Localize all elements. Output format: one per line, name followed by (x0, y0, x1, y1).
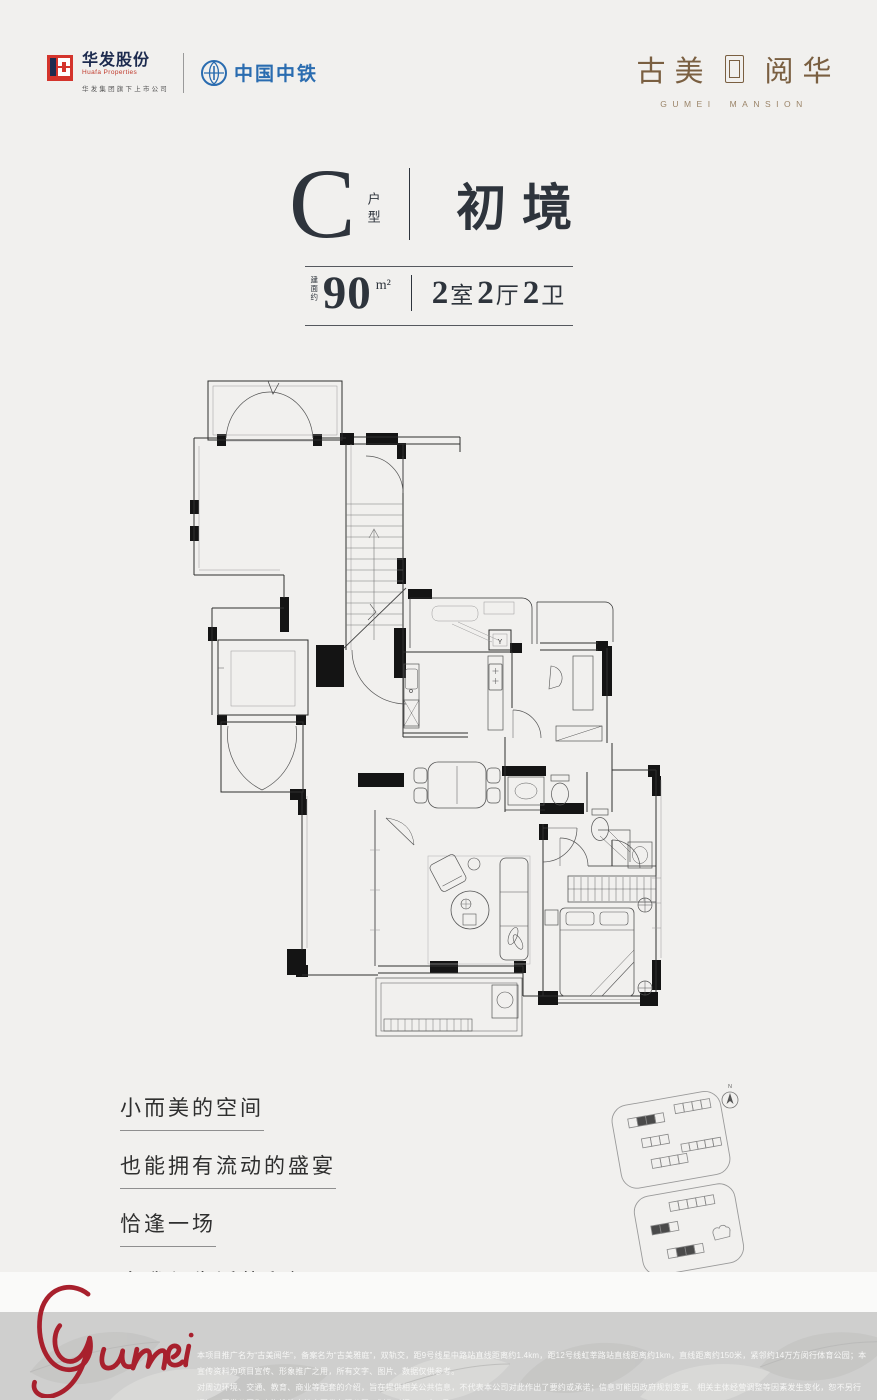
balcony (376, 978, 522, 1036)
crec-name-cn: 中国中铁 (234, 59, 318, 86)
quote-line-3: 恰逢一场 (120, 1208, 216, 1247)
washer (492, 985, 518, 1018)
header-logos: 华发股份 Huafa Properties 华发集团旗下上市公司 中国中铁 (45, 52, 318, 93)
title-divider (409, 168, 411, 240)
walls-solid (190, 433, 661, 1006)
brand-en-word1: GUMEI (660, 99, 715, 109)
unit-letter-label: 户型 (364, 192, 383, 228)
master-bedroom (545, 908, 634, 996)
parcel-2 (632, 1181, 746, 1277)
brand-cn-left: 古美 (627, 48, 712, 90)
huafa-name-cn: 华发股份 (82, 52, 169, 69)
north-label: N (728, 1084, 732, 1090)
signature-script (20, 1280, 205, 1398)
walls-thin (194, 381, 656, 1003)
huafa-name-en: Huafa Properties (82, 69, 169, 77)
header-divider (183, 53, 184, 93)
area-prefix: 建面约 (309, 276, 320, 310)
bathroom-2 (592, 809, 653, 868)
livingroom-count: 2 (477, 275, 494, 312)
room-count: 2室 2厅 2卫 (432, 275, 569, 312)
disclaimer-line-2: 对周边环境、交通、教育、商业等配套的介绍，旨在提供相关公共信息，不代表本公司对此… (197, 1380, 869, 1400)
bathroom-1 (508, 775, 569, 805)
brand-en: GUMEI MANSION (623, 99, 845, 109)
stairs (344, 504, 406, 648)
brand-seal-icon (725, 55, 744, 83)
unit-name: 初境 (440, 168, 588, 240)
parcel-1 (610, 1089, 733, 1191)
entry-double-door (226, 392, 270, 438)
crec-logo: 中国中铁 (200, 59, 318, 87)
floorplan-drawing: Y (185, 372, 685, 1044)
brand-en-word2: MANSION (730, 99, 808, 109)
area-unit: m² (376, 278, 391, 294)
title-block: C 户型 初境 建面约 90 m² 2室 2厅 2卫 (0, 158, 877, 326)
drain-symbols (638, 898, 652, 995)
lobby-room (221, 722, 303, 792)
huafa-logo: 华发股份 Huafa Properties 华发集团旗下上市公司 (45, 52, 169, 93)
clubhouse-shape (712, 1224, 731, 1240)
bedroom-2 (549, 656, 602, 741)
brand-cn-right: 阅华 (756, 48, 841, 90)
bathroom-count: 2 (523, 275, 540, 312)
title-rule-bottom (305, 325, 573, 326)
kitchen (404, 656, 503, 730)
poster: 华发股份 Huafa Properties 华发集团旗下上市公司 中国中铁 古美… (0, 0, 877, 1400)
unit-letter: C (289, 161, 356, 247)
area-value: 90 (323, 266, 372, 320)
window-lines (199, 386, 661, 1000)
siteplan-map: N (608, 1078, 778, 1278)
flue-label: Y (498, 639, 503, 646)
furniture (218, 656, 656, 1036)
living-room (428, 853, 530, 964)
bedroom-count: 2 (432, 275, 449, 312)
crec-logo-icon (200, 59, 228, 87)
huafa-tagline: 华发集团旗下上市公司 (82, 83, 169, 93)
subtitle-divider (411, 275, 412, 311)
brand-logo: 古美 阅华 GUMEI MANSION (623, 48, 845, 109)
disclaimer-line-1: 本项目推广名为“古美阅华”，备案名为“古美雅庭”，双轨交，距9号线星中路站直线距… (197, 1348, 869, 1380)
quote-line-1: 小而美的空间 (120, 1092, 264, 1131)
huafa-logo-icon (45, 52, 75, 86)
north-compass: N (722, 1084, 738, 1108)
quote-line-2: 也能拥有流动的盛宴 (120, 1150, 336, 1189)
disclaimer: 本项目推广名为“古美阅华”，备案名为“古美雅庭”，双轨交，距9号线星中路站直线距… (197, 1348, 869, 1400)
dining-area (414, 762, 500, 808)
